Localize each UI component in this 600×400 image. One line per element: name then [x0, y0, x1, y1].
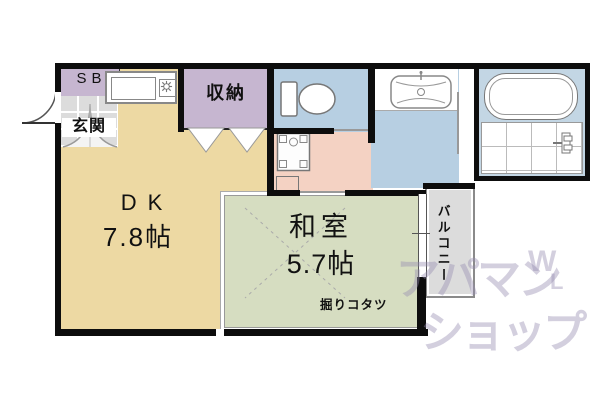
- toilet-icon: [278, 79, 338, 119]
- closet-door-swing-icon: [186, 127, 268, 154]
- wall-top: [55, 63, 590, 69]
- bath-door-line: [457, 92, 459, 154]
- wall-washitsu-top-left: [267, 190, 300, 196]
- wall-washitsu-top-right: [345, 190, 426, 196]
- watermark-text-line2: ショップ: [420, 296, 584, 360]
- watermark-logo: アパマン W L ショップ: [390, 243, 585, 373]
- dk-room-size: 7.8帖: [63, 224, 213, 251]
- washitsu-door-line: [300, 191, 345, 193]
- watermark-antenna-mark2: L: [550, 269, 563, 295]
- wall-balcony-top: [423, 183, 475, 189]
- window-tick: [412, 233, 430, 234]
- floorplan-canvas: SB 玄関 収納 DK 7.8帖 和室 5.7帖 掘りコタツ バルコニー アパマ…: [0, 0, 600, 400]
- toilet-door-line: [334, 129, 368, 131]
- wall-corridor-left: [267, 63, 274, 196]
- dk-room-name: DK: [63, 191, 222, 214]
- washbasin-icon: [389, 70, 453, 110]
- washing-machine-pan-icon: [276, 132, 312, 173]
- bathtub-icon: [484, 73, 578, 120]
- closet-label: 収納: [184, 84, 268, 103]
- stove-burner-icon: [159, 79, 177, 97]
- entrance-door-opening: [55, 92, 61, 123]
- wall-toilet-bottom: [274, 128, 334, 134]
- wall-bottom-joint: [216, 329, 224, 336]
- wall-toilet-right: [368, 63, 375, 143]
- room-bath: [474, 63, 590, 181]
- washitsu-room-size: 5.7帖: [246, 250, 396, 278]
- sb-label: SB: [57, 71, 122, 87]
- washitsu-room-name: 和室: [246, 213, 396, 241]
- shower-mixer-icon: [553, 132, 573, 154]
- kotatsu-label: 掘りコタツ: [320, 299, 400, 312]
- wall-bottom: [55, 329, 428, 336]
- genkan-label: 玄関: [62, 118, 116, 137]
